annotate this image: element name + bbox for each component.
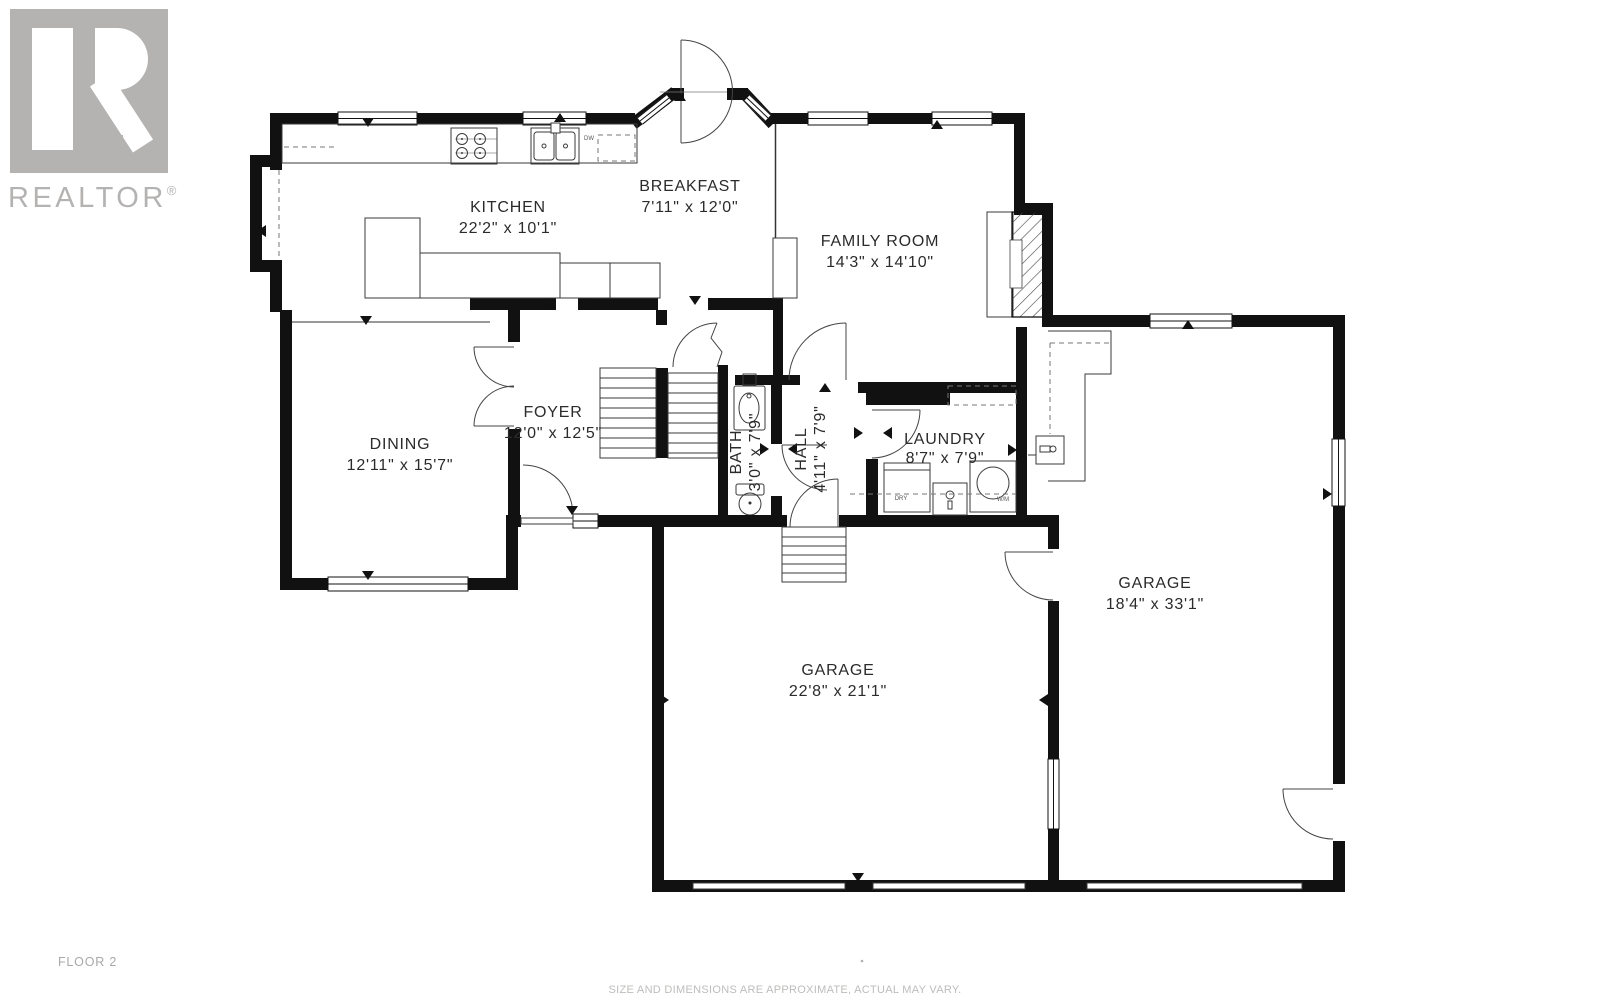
stray-dot — [861, 960, 864, 963]
dryer-icon: DRY — [884, 463, 930, 512]
svg-text:KITCHEN: KITCHEN — [470, 199, 546, 216]
svg-text:3'0" x 7'9": 3'0" x 7'9" — [747, 413, 764, 492]
garage-door-opening — [1087, 883, 1302, 889]
window — [328, 577, 468, 591]
window — [1332, 439, 1345, 506]
realtor-logo-text: REALTOR® — [8, 182, 180, 214]
room-label-dining: DINING 12'11" x 15'7" — [347, 436, 454, 474]
svg-text:18'4" x 33'1": 18'4" x 33'1" — [1106, 596, 1204, 613]
window — [932, 112, 992, 125]
window — [808, 112, 868, 125]
floor-plan: REALTOR® — [0, 0, 1600, 1000]
room-label-kitchen: KITCHEN 22'2" x 10'1" — [459, 199, 557, 237]
room-label-family-room: FAMILY ROOM 14'3" x 14'10" — [821, 233, 939, 271]
room-label-laundry: LAUNDRY 8'7" x 7'9" — [904, 431, 986, 467]
fireplace-icon — [987, 212, 1043, 317]
disclaimer-text: SIZE AND DIMENSIONS ARE APPROXIMATE, ACT… — [609, 984, 962, 996]
door-foyer-landing — [673, 323, 722, 367]
svg-text:GARAGE: GARAGE — [801, 662, 874, 679]
room-label-garage-bottom: GARAGE 22'8" x 21'1" — [789, 662, 887, 700]
svg-text:12'0" x 12'5": 12'0" x 12'5" — [504, 425, 602, 442]
window — [1048, 759, 1059, 829]
svg-text:22'2" x 10'1": 22'2" x 10'1" — [459, 220, 557, 237]
door-garage-divider — [1005, 552, 1053, 600]
breakfast-divider — [773, 124, 797, 298]
svg-text:22'8" x 21'1": 22'8" x 21'1" — [789, 683, 887, 700]
floor-plan-page: REALTOR® — [0, 0, 1600, 1000]
room-label-breakfast: BREAKFAST 7'11" x 12'0" — [639, 178, 740, 216]
water-heater-icon — [1028, 436, 1064, 464]
laundry-tub-icon — [933, 483, 967, 515]
footer: FLOOR 2 SIZE AND DIMENSIONS ARE APPROXIM… — [58, 955, 961, 996]
washer-icon: W/M — [970, 461, 1016, 512]
svg-text:DINING: DINING — [370, 436, 431, 453]
svg-text:BATH: BATH — [728, 430, 745, 475]
floor-label: FLOOR 2 — [58, 955, 117, 969]
garage-landing — [1048, 331, 1111, 481]
garage-door-opening — [693, 883, 845, 889]
svg-text:FAMILY ROOM: FAMILY ROOM — [821, 233, 939, 250]
svg-text:FOYER: FOYER — [523, 404, 582, 421]
svg-text:7'11" x 12'0": 7'11" x 12'0" — [642, 199, 739, 216]
svg-text:8'7" x 7'9": 8'7" x 7'9" — [906, 450, 985, 467]
window — [338, 112, 417, 125]
kitchen-counter: DW — [282, 123, 637, 164]
dryer-label: DRY — [895, 496, 908, 502]
svg-text:4'11" x 7'9": 4'11" x 7'9" — [812, 405, 829, 492]
room-label-garage-right: GARAGE 18'4" x 33'1" — [1106, 575, 1204, 613]
garage-door-opening — [873, 883, 1025, 889]
svg-text:14'3" x 14'10": 14'3" x 14'10" — [826, 254, 934, 271]
room-label-bath: BATH 3'0" x 7'9" — [728, 413, 764, 492]
walls — [250, 88, 1345, 892]
svg-text:12'11" x 15'7": 12'11" x 15'7" — [347, 457, 454, 474]
door-garage-side — [1283, 789, 1333, 839]
stairs-garage — [782, 527, 846, 582]
direction-arrows — [257, 92, 1332, 882]
wall-openings — [508, 297, 1345, 841]
faucet-icon — [551, 123, 560, 133]
garage-doors — [693, 883, 1302, 889]
svg-text:BREAKFAST: BREAKFAST — [639, 178, 740, 195]
svg-text:LAUNDRY: LAUNDRY — [904, 431, 986, 448]
washer-label: W/M — [997, 497, 1009, 503]
dishwasher-icon: DW — [584, 135, 635, 161]
realtor-logo: REALTOR® — [8, 9, 180, 214]
door-family-hall — [789, 323, 846, 380]
dishwasher-label: DW — [584, 136, 594, 142]
kitchen-sink-icon — [531, 123, 579, 164]
stove-icon — [451, 128, 497, 164]
svg-text:GARAGE: GARAGE — [1118, 575, 1191, 592]
window — [573, 514, 598, 528]
svg-text:HALL: HALL — [793, 427, 810, 470]
